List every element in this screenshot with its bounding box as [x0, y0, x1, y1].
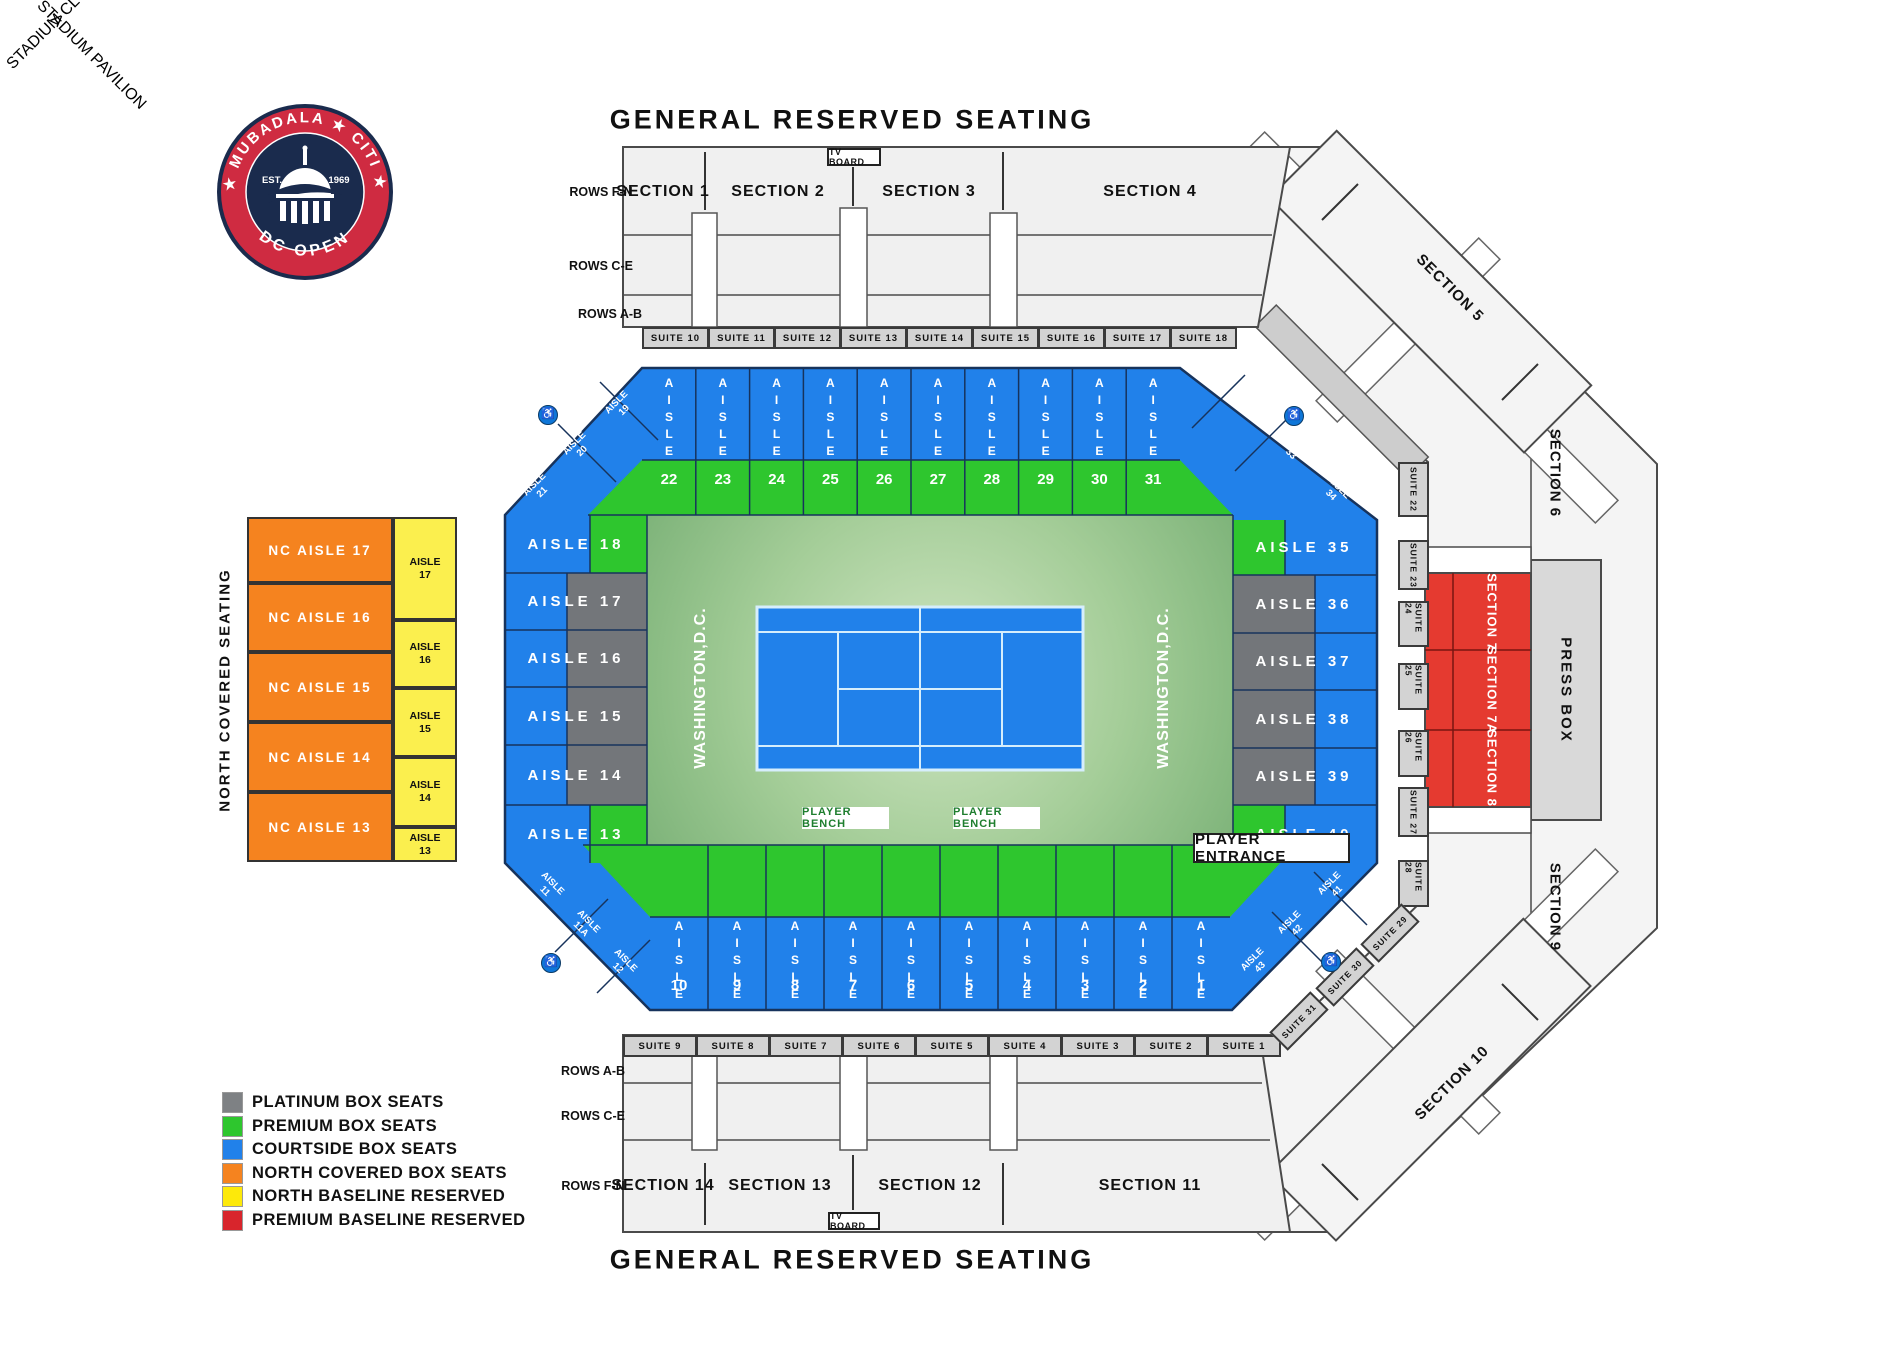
aisle-column: AISLE 4 — [998, 845, 1056, 1010]
suite-cell: SUITE 9 — [623, 1035, 697, 1057]
aisle-row-label: AISLE 16 — [505, 630, 647, 687]
title-general-reserved-bottom: GENERAL RESERVED SEATING — [610, 1245, 1095, 1276]
rows-label: ROWS F-N — [561, 1179, 624, 1193]
logo-est-text: EST. — [262, 175, 282, 186]
suite-cell: SUITE 11 — [708, 327, 775, 349]
aisle-column: AISLE 26 — [857, 368, 911, 515]
legend-swatch — [222, 1210, 243, 1231]
suite-cell: SUITE 2 — [1134, 1035, 1208, 1057]
suite-cell: SUITE 4 — [988, 1035, 1062, 1057]
aisle-row-label: AISLE 13 — [505, 805, 647, 863]
aisle-word: AISLE — [410, 779, 441, 792]
red-section-label: SECTION 8 — [1485, 729, 1500, 807]
baseline-aisle-cell: AISLE16 — [393, 620, 457, 688]
section-label: SECTION 2 — [731, 183, 824, 201]
aisle-column: AISLE 3 — [1056, 845, 1114, 1010]
suite-cell: SUITE 22 — [1398, 462, 1429, 517]
aisle-column: AISLE 8 — [766, 845, 824, 1010]
aisle-row-label: AISLE 18 — [505, 515, 647, 573]
aisle-column: AISLE 28 — [965, 368, 1019, 515]
aisle-column: AISLE 23 — [696, 368, 750, 515]
aisle-number: 10 — [650, 977, 708, 994]
baseline-aisle-cell: AISLE15 — [393, 688, 457, 757]
aisle-number: 8 — [766, 977, 824, 994]
aisle-number: 7 — [824, 977, 882, 994]
aisle-number: 9 — [708, 977, 766, 994]
suite-cell: SUITE 27 — [1398, 787, 1429, 837]
suite-cell: SUITE 5 — [915, 1035, 989, 1057]
section-6-label: SECTION 6 — [1547, 429, 1564, 517]
section-label: SECTION 4 — [1103, 183, 1196, 201]
aisle-row-label: AISLE 15 — [505, 687, 647, 745]
wheelchair-icon: ♿ — [541, 953, 561, 973]
aisle-column: AISLE 24 — [750, 368, 804, 515]
red-section-label: SECTION 7 — [1485, 573, 1500, 651]
aisle-column: AISLE 29 — [1019, 368, 1073, 515]
aisle-word: AISLE — [770, 376, 784, 461]
aisle-number: 26 — [857, 471, 911, 488]
aisle-column: AISLE 6 — [882, 845, 940, 1010]
section-label: SECTION 12 — [878, 1177, 981, 1195]
suite-cell: SUITE 7 — [769, 1035, 843, 1057]
section-label: SECTION 11 — [1099, 1177, 1201, 1195]
aisle-number: 17 — [410, 569, 441, 582]
nc-aisle-cell: NC AISLE 17 — [247, 517, 393, 583]
legend-label: NORTH BASELINE RESERVED — [252, 1187, 505, 1206]
nc-aisle-cell: NC AISLE 13 — [247, 792, 393, 862]
suite-cell: SUITE 23 — [1398, 540, 1429, 590]
nc-aisle-cell: NC AISLE 14 — [247, 722, 393, 792]
suite-cell: SUITE 6 — [842, 1035, 916, 1057]
north-covered-seating-label: NORTH COVERED SEATING — [217, 568, 234, 811]
tv-board-top: TV BOARD — [827, 148, 881, 166]
logo-year-text: 1969 — [328, 175, 349, 186]
aisle-number: 3 — [1056, 977, 1114, 994]
aisle-number: 6 — [882, 977, 940, 994]
aisle-word: AISLE — [410, 556, 441, 569]
aisle-number: 22 — [642, 471, 696, 488]
aisle-number: 5 — [940, 977, 998, 994]
aisle-word: AISLE — [1092, 376, 1106, 461]
aisle-column: AISLE 31 — [1126, 368, 1180, 515]
aisle-number: 23 — [696, 471, 750, 488]
aisle-number: 13 — [410, 845, 441, 858]
aisle-number: 4 — [998, 977, 1056, 994]
section-label: SECTION 3 — [882, 183, 975, 201]
nc-aisle-cell: NC AISLE 15 — [247, 652, 393, 722]
legend-swatch — [222, 1092, 243, 1113]
aisle-number: 25 — [803, 471, 857, 488]
rows-label: ROWS C-E — [561, 1109, 625, 1123]
aisle-number: 15 — [410, 723, 441, 736]
suite-cell: SUITE 1 — [1207, 1035, 1281, 1057]
suite-cell: SUITE 12 — [774, 327, 841, 349]
title-general-reserved-top: GENERAL RESERVED SEATING — [610, 105, 1095, 136]
suite-cell: SUITE 10 — [642, 327, 709, 349]
suite-cell: SUITE 18 — [1170, 327, 1237, 349]
aisle-row-label: AISLE 17 — [505, 573, 647, 630]
nc-aisle-cell: NC AISLE 16 — [247, 583, 393, 652]
stadium-seating-map: ★ MUBADALA ★ CITI ★ DC OPEN EST. 1969 GE… — [0, 0, 1900, 1371]
aisle-word: AISLE — [410, 710, 441, 723]
aisle-word: AISLE — [985, 376, 999, 461]
suite-cell: SUITE 13 — [840, 327, 907, 349]
wheelchair-icon: ♿ — [1321, 952, 1341, 972]
legend-swatch — [222, 1139, 243, 1160]
aisle-number: 29 — [1019, 471, 1073, 488]
aisle-row-label: AISLE 38 — [1233, 690, 1375, 748]
rows-label: ROWS A-B — [561, 1064, 625, 1078]
legend-label: PREMIUM BOX SEATS — [252, 1117, 437, 1136]
rows-label: ROWS A-B — [578, 307, 642, 321]
legend-label: PLATINUM BOX SEATS — [252, 1093, 444, 1112]
aisle-number: 31 — [1126, 471, 1180, 488]
aisle-column: AISLE 27 — [911, 368, 965, 515]
legend-label: COURTSIDE BOX SEATS — [252, 1140, 457, 1159]
player-entrance-label: PLAYER ENTRANCE — [1193, 833, 1350, 863]
aisle-column: AISLE 9 — [708, 845, 766, 1010]
suite-cell: SUITE 16 — [1038, 327, 1105, 349]
aisle-word: AISLE — [662, 376, 676, 461]
legend-label: NORTH COVERED BOX SEATS — [252, 1164, 507, 1183]
suite-cell: SUITE 25 — [1398, 663, 1429, 710]
suite-cell: SUITE 28 — [1398, 860, 1429, 907]
legend-swatch — [222, 1186, 243, 1207]
aisle-number: 14 — [410, 792, 441, 805]
aisle-row-label: AISLE 35 — [1233, 520, 1375, 575]
aisle-number: 1 — [1172, 977, 1230, 994]
tournament-logo: ★ MUBADALA ★ CITI ★ DC OPEN EST. 1969 — [210, 97, 400, 287]
press-box-label: PRESS BOX — [1558, 637, 1575, 743]
aisle-column: AISLE 25 — [803, 368, 857, 515]
suite-cell: SUITE 14 — [906, 327, 973, 349]
aisle-number: 28 — [965, 471, 1019, 488]
aisle-number: 30 — [1072, 471, 1126, 488]
legend-label: PREMIUM BASELINE RESERVED — [252, 1211, 526, 1230]
suite-cell: SUITE 24 — [1398, 601, 1429, 647]
aisle-column: AISLE 5 — [940, 845, 998, 1010]
city-label-right: WASHINGTON,D.C. — [1155, 607, 1173, 768]
aisle-word: AISLE — [1146, 376, 1160, 461]
baseline-aisle-cell: AISLE14 — [393, 757, 457, 827]
wheelchair-icon: ♿ — [1284, 406, 1304, 426]
aisle-row-label: AISLE 37 — [1233, 633, 1375, 690]
aisle-row-label: AISLE 36 — [1233, 575, 1375, 633]
aisle-column: AISLE 30 — [1072, 368, 1126, 515]
tv-board-bottom: TV BOARD — [828, 1212, 880, 1230]
baseline-aisle-cell: AISLE17 — [393, 517, 457, 620]
aisle-row-label: AISLE 14 — [505, 745, 647, 805]
aisle-column: AISLE 10 — [650, 845, 708, 1010]
aisle-word: AISLE — [410, 832, 441, 845]
baseline-aisle-cell: AISLE13 — [393, 827, 457, 862]
aisle-column: AISLE 1 — [1172, 845, 1230, 1010]
rows-label: ROWS C-E — [569, 259, 633, 273]
suite-cell: SUITE 3 — [1061, 1035, 1135, 1057]
aisle-word: AISLE — [823, 376, 837, 461]
section-label: SECTION 14 — [611, 1177, 714, 1195]
aisle-column: AISLE 22 — [642, 368, 696, 515]
section-9-label: SECTION 9 — [1547, 863, 1564, 951]
suite-cell: SUITE 8 — [696, 1035, 770, 1057]
suite-cell: SUITE 26 — [1398, 730, 1429, 777]
red-section-label: SECTION 7A — [1485, 646, 1500, 734]
section-label: SECTION 13 — [728, 1177, 831, 1195]
aisle-word: AISLE — [877, 376, 891, 461]
aisle-number: 2 — [1114, 977, 1172, 994]
aisle-word: AISLE — [716, 376, 730, 461]
suite-cell: SUITE 15 — [972, 327, 1039, 349]
aisle-number: 16 — [410, 654, 441, 667]
aisle-number: 24 — [750, 471, 804, 488]
player-bench-right: PLAYER BENCH — [953, 807, 1040, 829]
aisle-number: 27 — [911, 471, 965, 488]
aisle-word: AISLE — [931, 376, 945, 461]
player-bench-left: PLAYER BENCH — [802, 807, 889, 829]
aisle-word: AISLE — [410, 641, 441, 654]
aisle-word: AISLE — [1039, 376, 1053, 461]
aisle-row-label: AISLE 39 — [1233, 748, 1375, 805]
city-label-left: WASHINGTON,D.C. — [692, 607, 710, 768]
wheelchair-icon: ♿ — [538, 405, 558, 425]
legend-swatch — [222, 1163, 243, 1184]
suite-cell: SUITE 17 — [1104, 327, 1171, 349]
aisle-column: AISLE 7 — [824, 845, 882, 1010]
rows-label: ROWS F-N — [569, 185, 632, 199]
aisle-column: AISLE 2 — [1114, 845, 1172, 1010]
legend-swatch — [222, 1116, 243, 1137]
